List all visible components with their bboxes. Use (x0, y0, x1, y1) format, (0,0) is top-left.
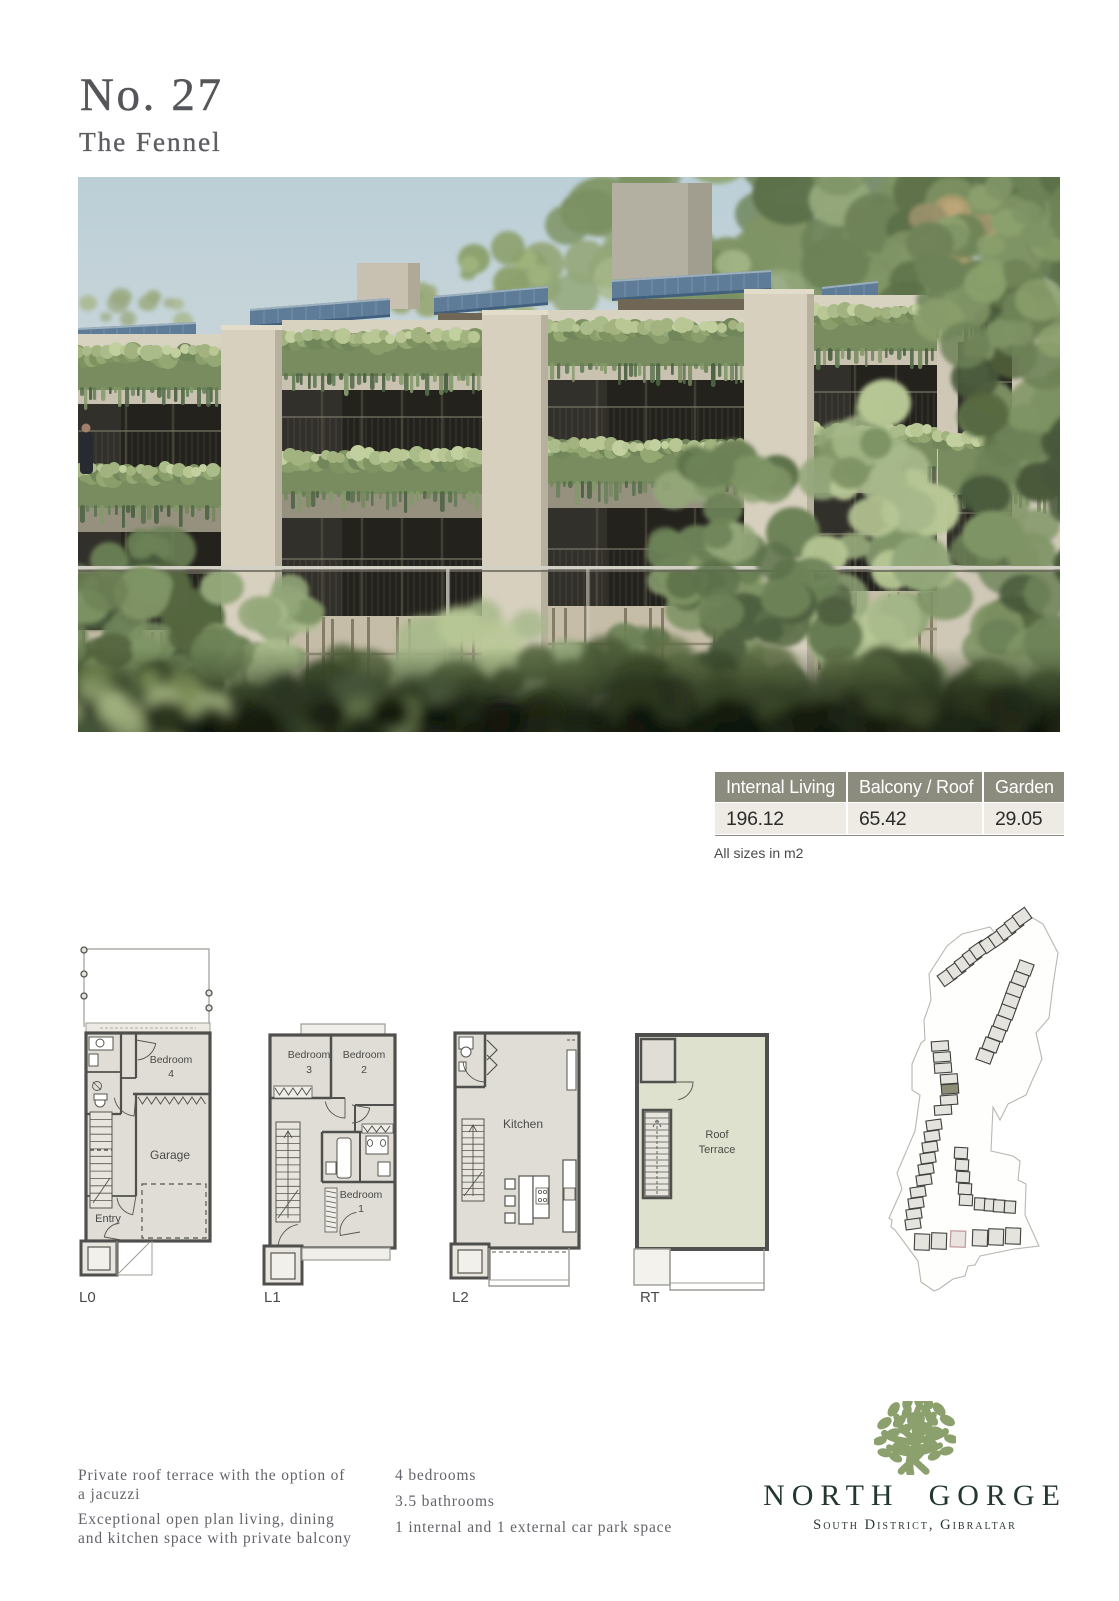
svg-text:L1: L1 (264, 1289, 281, 1306)
svg-text:Terrace: Terrace (699, 1144, 736, 1156)
svg-text:3: 3 (306, 1064, 312, 1076)
svg-text:Bedroom: Bedroom (288, 1049, 331, 1061)
svg-text:Bedroom: Bedroom (340, 1189, 383, 1201)
svg-text:Entry: Entry (95, 1213, 121, 1225)
svg-text:RT: RT (640, 1289, 660, 1306)
svg-text:4: 4 (168, 1068, 174, 1080)
svg-text:L2: L2 (452, 1289, 469, 1306)
svg-text:1: 1 (358, 1203, 364, 1215)
svg-text:L0: L0 (79, 1289, 96, 1306)
svg-text:2: 2 (361, 1064, 367, 1076)
svg-text:Roof: Roof (705, 1129, 729, 1141)
svg-text:Kitchen: Kitchen (503, 1117, 543, 1131)
svg-text:Bedroom: Bedroom (150, 1054, 193, 1066)
svg-text:Garage: Garage (150, 1148, 190, 1162)
svg-text:Bedroom: Bedroom (343, 1049, 386, 1061)
